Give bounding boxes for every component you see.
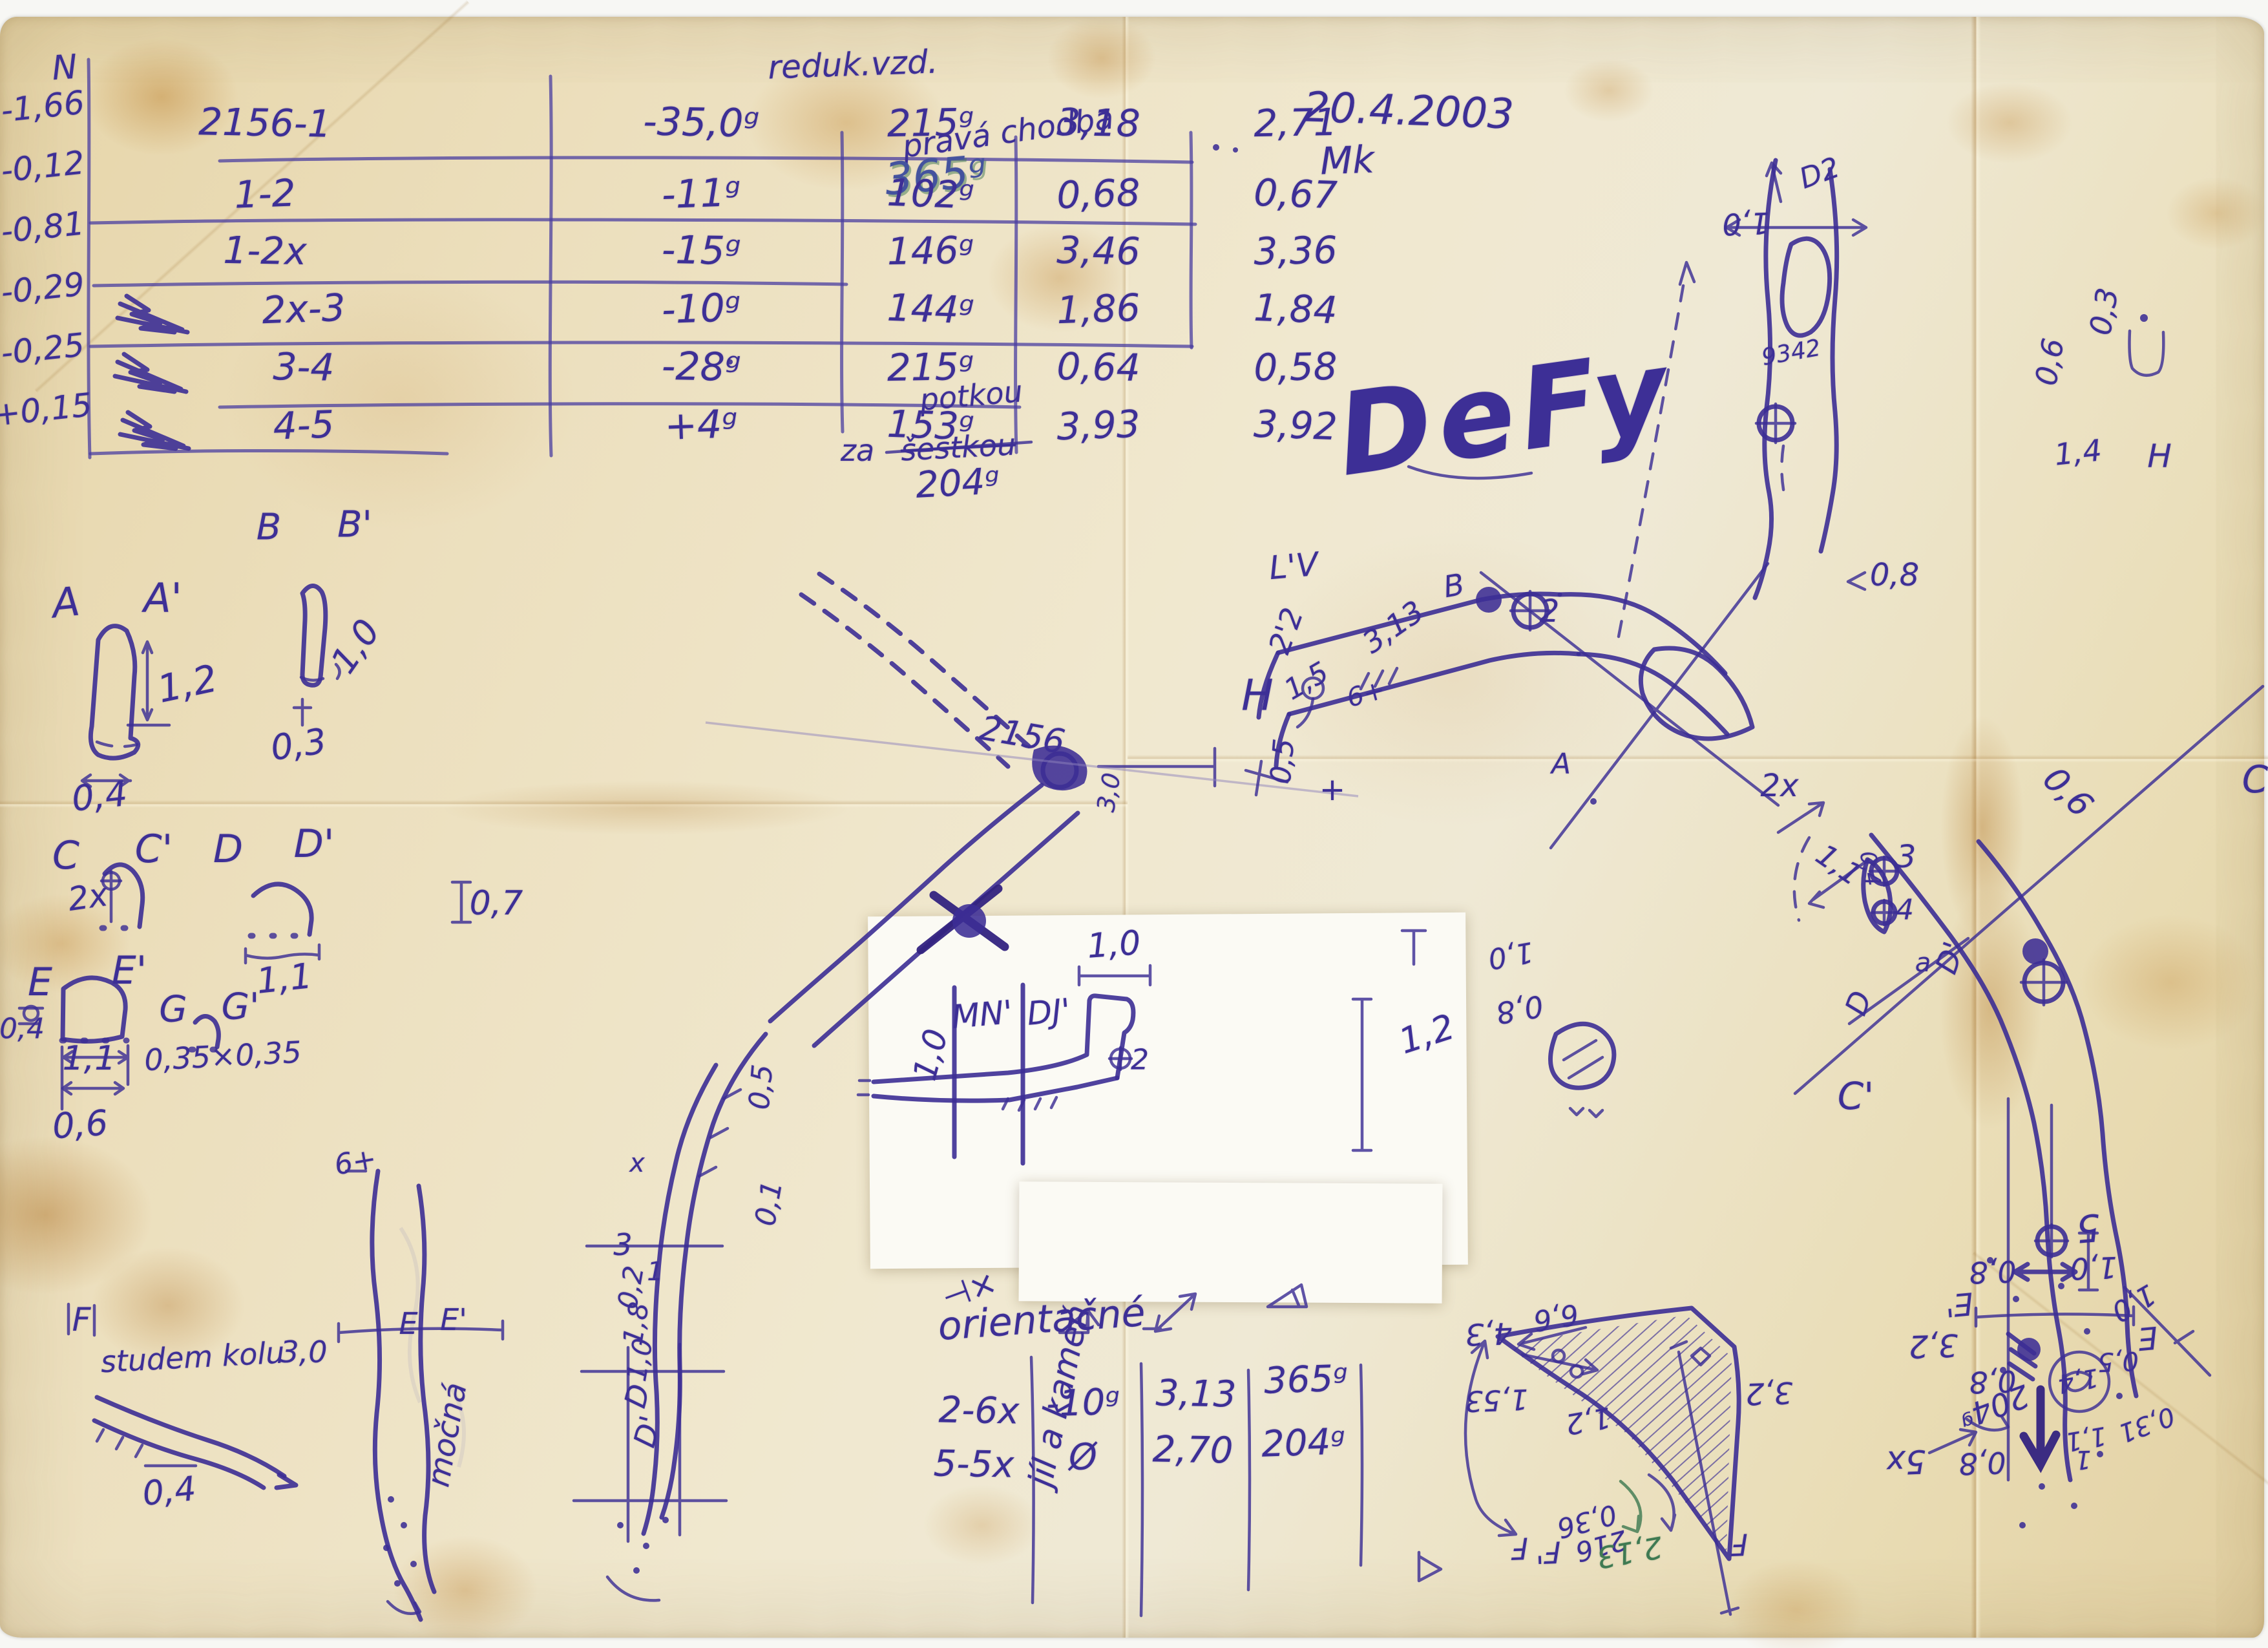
- handwritten-annotation: D: [213, 827, 243, 872]
- table-cell-station: 4-5: [272, 402, 335, 448]
- table-cell-azimuth: 102ᵍ: [887, 171, 975, 218]
- handwritten-annotation: 3,2: [1908, 1327, 1958, 1365]
- orientation-cell: 2,70: [1152, 1428, 1234, 1472]
- handwritten-annotation: C: [52, 833, 79, 878]
- handwritten-annotation: 3: [613, 1227, 632, 1262]
- handwritten-annotation: 3,0: [280, 1335, 327, 1369]
- handwritten-annotation: 0,7: [470, 884, 523, 923]
- scanned-cave-survey-sheet: { "document": { "date": "20.4.2003", "in…: [0, 0, 2268, 1648]
- handwritten-annotation: 1,0: [1722, 206, 1770, 242]
- handwritten-annotation: 1,53: [1464, 1382, 1529, 1417]
- table-cell-length: 0,64: [1056, 344, 1140, 390]
- handwritten-annotation: 0,5: [743, 1063, 780, 1111]
- handwritten-annotation: F: [72, 1301, 91, 1338]
- handwritten-annotation: A: [1551, 748, 1571, 781]
- handwritten-annotation: 5x: [1885, 1442, 1926, 1481]
- handwritten-annotation: C': [1838, 1074, 1874, 1118]
- table-cell-reduced: 2,71: [1254, 100, 1338, 145]
- handwritten-annotation: 2x: [66, 876, 110, 918]
- handwritten-annotation: 3: [1896, 839, 1916, 875]
- handwritten-annotation: 0,4: [141, 1470, 198, 1514]
- handwritten-annotation: G: [159, 989, 187, 1031]
- note-below-value: 204ᵍ: [915, 460, 1001, 507]
- handwritten-annotation: H: [2147, 438, 2172, 475]
- handwritten-annotation: 0,8: [1958, 1445, 2007, 1482]
- left-plan-passage: [339, 1171, 503, 1620]
- handwritten-annotation: L'V: [1268, 545, 1320, 587]
- handwritten-annotation: 2x: [1761, 768, 1799, 804]
- orientation-cell: 2-6x: [938, 1389, 1020, 1432]
- handwritten-annotation: 4: [1896, 894, 1914, 927]
- table-cell-azimuth: 215ᵍ: [887, 100, 974, 145]
- table-cell-slope: -11ᵍ: [661, 170, 742, 218]
- orientation-cell: 365ᵍ: [1263, 1357, 1349, 1402]
- handwritten-annotation: E: [2136, 1319, 2159, 1357]
- table-cell-reduced: 3,36: [1254, 228, 1338, 273]
- table-cell-station: 1-2x: [223, 228, 307, 273]
- table-cell-length: 0,68: [1056, 171, 1140, 217]
- handwritten-annotation: 0,8: [1870, 557, 1919, 593]
- handwritten-annotation: G': [222, 986, 260, 1028]
- handwritten-annotation: E: [28, 960, 52, 1005]
- orientation-cell: 5-5x: [933, 1442, 1014, 1486]
- handwritten-annotation: a: [1915, 948, 1931, 978]
- table-cell-slope: +4ᵍ: [664, 401, 738, 449]
- handwritten-annotation: MN': [950, 993, 1014, 1036]
- handwritten-annotation: D': [294, 821, 335, 867]
- table-cell-reduced: 0,58: [1254, 344, 1338, 390]
- handwritten-annotation: 0,4: [0, 1013, 45, 1046]
- table-cell-reduced: 0,67: [1253, 171, 1338, 217]
- clinometer-icon: [1268, 1285, 1307, 1307]
- handwritten-annotation: E: [399, 1306, 417, 1341]
- handwritten-annotation: F: [1511, 1531, 1529, 1567]
- table-cell-station: 1-2: [233, 171, 296, 217]
- north-triangle-icon: [1419, 1552, 1441, 1581]
- table-cell-reduced: 1,84: [1253, 286, 1338, 332]
- table-cell-length: 1,86: [1056, 286, 1140, 332]
- handwritten-annotation: C': [135, 827, 173, 872]
- handwritten-annotation: 1,0: [1086, 924, 1142, 966]
- orientation-cell: 204ᵍ: [1261, 1421, 1346, 1465]
- table-cell-slope: -35,0ᵍ: [643, 99, 760, 146]
- table-cell-station: 2156-1: [198, 100, 332, 146]
- table-cell-reduced: 3,92: [1253, 402, 1338, 449]
- handwritten-annotation: +: [1319, 772, 1345, 808]
- table-header-n: N: [51, 48, 79, 89]
- table-cell-slope: -28ᵍ: [661, 344, 741, 390]
- handwritten-annotation: 4,3: [1465, 1316, 1513, 1353]
- table-header-reduced: reduk.vzd.: [768, 43, 939, 86]
- green-arrow: [1621, 1481, 1641, 1532]
- table-cell-station: 2x-3: [261, 286, 346, 332]
- table-cell-length: 3,93: [1056, 402, 1140, 449]
- table-cell-azimuth: 153ᵍ: [887, 402, 975, 449]
- cross-section-drawings: [19, 586, 470, 1109]
- handwritten-annotation: 0,4: [70, 773, 129, 819]
- distance-arrow-icon: [1144, 1294, 1195, 1331]
- note-below-word2: za: [841, 433, 874, 468]
- handwritten-annotation: 0,6: [51, 1103, 109, 1147]
- handwritten-annotation: 0,5: [2097, 1346, 2139, 1377]
- handwritten-annotation: 0,3: [268, 721, 329, 768]
- handwritten-annotation: 1,1: [63, 1039, 116, 1078]
- handwritten-annotation: E': [440, 1302, 467, 1337]
- handwritten-annotation: 3,2: [1745, 1375, 1794, 1412]
- handwritten-annotation: 2: [1131, 1044, 1149, 1077]
- handwritten-annotation: F': [1535, 1534, 1562, 1570]
- handwritten-annotation: 1,1: [255, 955, 314, 1002]
- handwritten-annotation: 1: [2074, 1444, 2092, 1475]
- table-cell-slope: -15ᵍ: [661, 227, 741, 274]
- handwritten-annotation: 2: [1540, 593, 1560, 629]
- handwritten-annotation: A': [143, 575, 182, 622]
- handwritten-annotation: 5: [2075, 1205, 2103, 1251]
- handwritten-annotation: DJ': [1025, 991, 1072, 1033]
- handwritten-annotation: x: [629, 1148, 645, 1178]
- table-cell-length: 3,18: [1056, 100, 1140, 145]
- table-cell-station: 3-4: [273, 344, 335, 390]
- orientation-cell: 3,13: [1155, 1372, 1237, 1415]
- handwritten-annotation: E': [1944, 1285, 1975, 1324]
- table-cell-azimuth: 215ᵍ: [887, 344, 974, 390]
- table-cell-azimuth: 144ᵍ: [887, 286, 975, 333]
- handwritten-annotation: B: [257, 507, 281, 549]
- orientation-cell: Ø: [1068, 1436, 1098, 1479]
- handwritten-annotation: A: [50, 577, 82, 627]
- bottom-left-passage-sketch: [68, 1304, 296, 1488]
- top-right-plan: [1246, 160, 2163, 848]
- handwritten-annotation: C: [2242, 757, 2268, 801]
- table-cell-slope: -10ᵍ: [661, 285, 742, 333]
- handwritten-annotation: 0,8: [1969, 1254, 2017, 1291]
- table-cell-azimuth: 146ᵍ: [887, 228, 974, 273]
- handwritten-annotation: E': [112, 948, 147, 993]
- handwritten-annotation: 1,0: [2070, 1250, 2118, 1287]
- table-cell-length: 3,46: [1056, 228, 1140, 273]
- handwritten-annotation: 1,4: [2053, 432, 2103, 472]
- handwritten-annotation: F: [1730, 1527, 1748, 1563]
- handwritten-annotation: B': [337, 504, 372, 546]
- handwritten-annotation: H: [1241, 671, 1274, 721]
- handwritten-annotation: 0,5: [1265, 737, 1301, 785]
